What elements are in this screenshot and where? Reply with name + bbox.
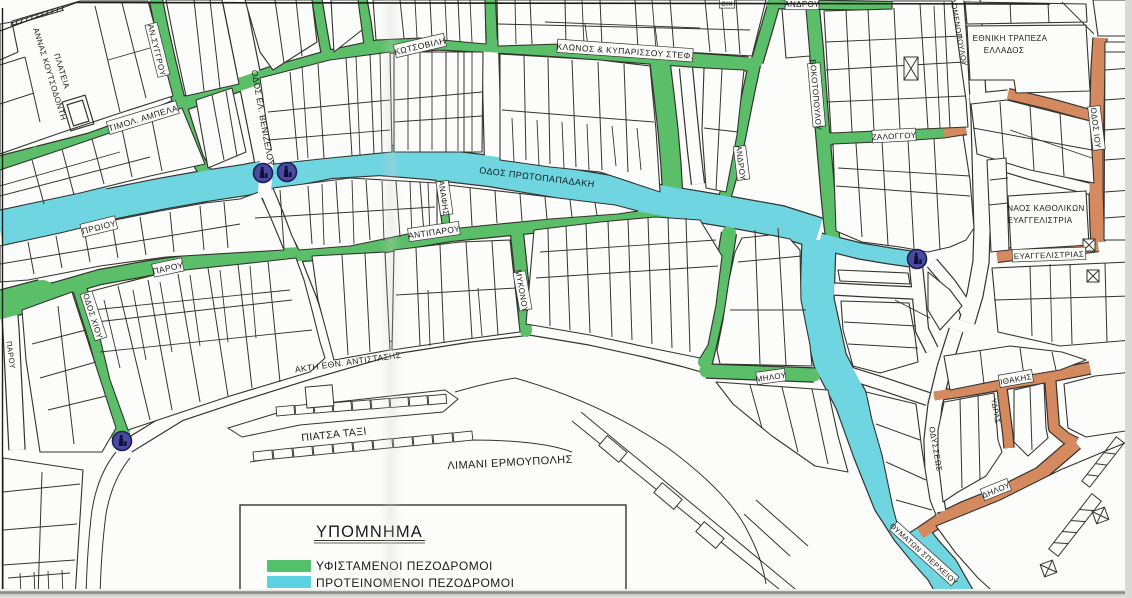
svg-text:ΥΠΟΜΝΗΜΑ: ΥΠΟΜΝΗΜΑ	[316, 523, 423, 541]
svg-text:ΑΝΔΡΟΥ: ΑΝΔΡΟΥ	[784, 0, 820, 9]
svg-text:ΕΥΑΓΓΕΛΙΣΤΡΙΑ: ΕΥΑΓΓΕΛΙΣΤΡΙΑ	[1007, 216, 1072, 225]
svg-text:ΕΘΝΙΚΗ ΤΡΑΠΕΖΑ: ΕΘΝΙΚΗ ΤΡΑΠΕΖΑ	[973, 34, 1048, 43]
svg-text:ΕΛΛΑΔΟΣ: ΕΛΛΑΔΟΣ	[984, 46, 1025, 55]
svg-text:ΥΦΙΣΤΑΜΕΝΟΙ ΠΕΖΟΔΡΟΜΟΙ: ΥΦΙΣΤΑΜΕΝΟΙ ΠΕΖΟΔΡΟΜΟΙ	[316, 559, 493, 573]
svg-text:ΠΡΟΤΕΙΝΟΜΕΝΟΙ ΠΕΖΟΔΡΟΜΟΙ: ΠΡΟΤΕΙΝΟΜΕΝΟΙ ΠΕΖΟΔΡΟΜΟΙ	[316, 576, 514, 590]
svg-text:ΝΑΟΣ ΚΑΘΟΛΙΚΩΝ: ΝΑΟΣ ΚΑΘΟΛΙΚΩΝ	[1007, 204, 1084, 213]
